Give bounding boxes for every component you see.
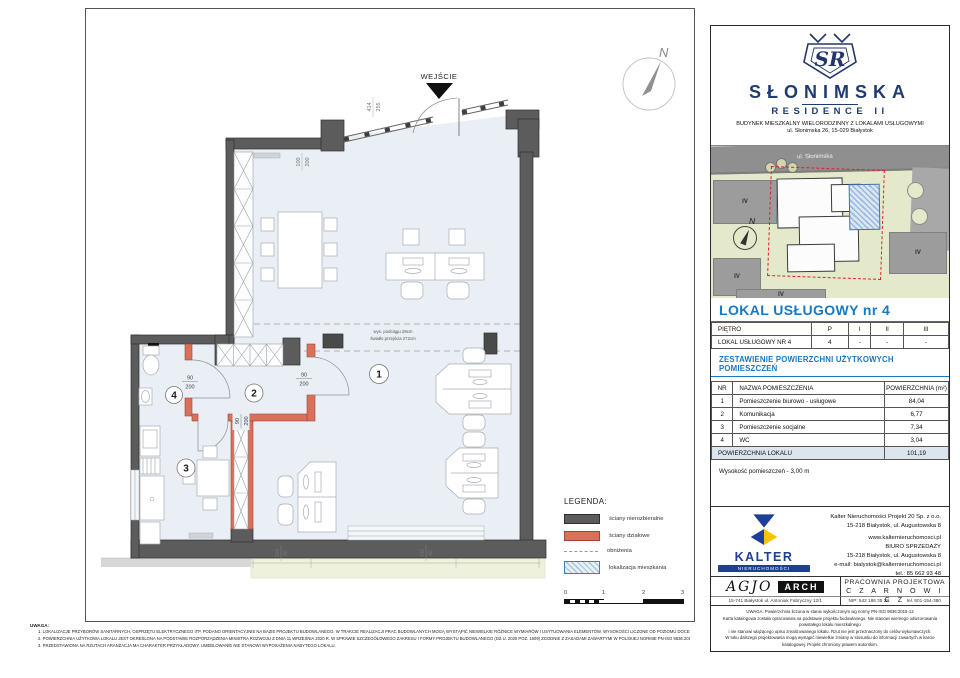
- contact-line: 15-218 Białystok, ul. Augustowska 8: [810, 522, 941, 531]
- beam-note-line1: wys. podciągu 28cm: [374, 329, 413, 334]
- svg-text:414: 414: [367, 102, 373, 111]
- window-left: [131, 470, 139, 520]
- svg-text:200: 200: [244, 416, 250, 425]
- svg-text:90: 90: [187, 376, 193, 382]
- fine-print: UWAGA: Powierzchnia liczona w stanie wyk…: [711, 605, 949, 651]
- window-bottom: [348, 526, 484, 540]
- entrance-arrow-icon: [426, 83, 453, 99]
- brand-subtitle: RESIDENCE II: [711, 106, 949, 117]
- building-description: BUDYNEK MIESZKALNY WIELORODZINNY Z LOKAL…: [711, 121, 949, 127]
- building-footprint: [787, 244, 835, 273]
- fine-print-line: W toku dalszego projektowania mogą wystą…: [717, 635, 943, 648]
- studio-nip: NIP: 542 186 35 28: [849, 598, 889, 605]
- svg-text:3: 3: [183, 464, 189, 475]
- entrance-label: WEJŚCIE: [421, 72, 458, 81]
- dashed-line-swatch: [564, 551, 598, 552]
- developer-block: KALTER NIERUCHOMOŚCI Kalter Nieruchomośc…: [711, 506, 949, 576]
- entry-dim: 414 255: [367, 97, 382, 117]
- north-label: N: [659, 45, 669, 60]
- door-dim-3: 90 200: [233, 412, 251, 430]
- svg-text:2: 2: [251, 389, 257, 400]
- kalter-sub: NIERUCHOMOŚCI: [718, 565, 810, 572]
- map-north-label: N: [749, 216, 755, 226]
- sr-logo-icon: SR: [798, 32, 862, 80]
- studio-tel: tel. 501-154-380: [907, 598, 941, 605]
- studio-block: AGJO ARCH PRACOWNIA PROJEKTOWA C Z A R N…: [711, 576, 949, 605]
- agjo-arch-logo: AGJO ARCH: [711, 577, 840, 596]
- legend-item: obniżenia: [564, 548, 688, 554]
- areas-row: 3 Pomieszczenie socjalne 7,34: [712, 421, 949, 434]
- note-line: 1. LOKALIZACJE PRZYBORÓW SANITARNYCH, OS…: [30, 629, 690, 636]
- height-note: Wysokość pomieszczeń - 3,00 m: [711, 460, 949, 475]
- floorplan-sheet: WEJŚCIE: [85, 8, 695, 622]
- street-label: ul. Słonimska: [797, 154, 833, 161]
- svg-text:60: 60: [283, 550, 289, 556]
- note-line: 3. PRZEDSTAWIONA NA RZUTACH ARANŻACJA MA…: [30, 643, 690, 650]
- neighbor-building: IV: [889, 232, 947, 274]
- areas-row: 2 Komunikacja 6,77: [712, 408, 949, 421]
- kalter-logo: KALTER NIERUCHOMOŚCI: [718, 513, 810, 571]
- agjo-logo: AGJO: [726, 579, 772, 595]
- solid-wall-swatch: [564, 514, 600, 524]
- svg-text:200: 200: [185, 385, 194, 391]
- driveway-arc: [911, 208, 928, 225]
- legend: LEGENDA: ściany nierozbieralne ściany dz…: [564, 497, 688, 606]
- info-panel: SR SŁONIMSKA RESIDENCE II BUDYNEK MIESZK…: [710, 25, 950, 652]
- areas-heading: ZESTAWIENIE POWIERZCHNI UŻYTKOWYCH POMIE…: [711, 349, 949, 377]
- contact-line: BIURO SPRZEDAŻY: [810, 543, 941, 552]
- svg-text:90: 90: [301, 373, 307, 379]
- studio-name: PRACOWNIA PROJEKTOWA C Z A R N O W I C Z: [840, 577, 949, 596]
- map-compass-icon: [733, 226, 757, 250]
- studio-address: 15-741 Białystok ul. Antoniuk Fabryczny …: [711, 596, 840, 605]
- svg-text:SR: SR: [814, 47, 845, 71]
- svg-text:200: 200: [305, 157, 311, 166]
- legend-item: lokalizacja mieszkania: [564, 561, 688, 574]
- contact-line: Kalter Nieruchomości Projekt 20 Sp. z o.…: [810, 513, 941, 522]
- svg-text:100: 100: [296, 157, 302, 166]
- areas-row: 1 Pomieszczenie biurowo - usługowe 84,04: [712, 395, 949, 408]
- contact-line: e-mail: bialystok@kalternieruchomosci.pl: [810, 561, 941, 570]
- legend-title: LEGENDA:: [564, 497, 688, 506]
- floor-table: PIĘTRO P I II III LOKAL USŁUGOWY NR 4 4 …: [711, 322, 949, 349]
- door-dim-2: 90 200: [295, 370, 313, 388]
- unit-highlight: [849, 184, 881, 231]
- brand-name: SŁONIMSKA: [711, 82, 949, 103]
- compass-needle: [740, 228, 752, 245]
- neighbor-building: IV: [736, 289, 826, 298]
- studio-ids: NIP: 542 186 35 28 tel. 501-154-380: [840, 596, 949, 605]
- beam-note-line2: światło przejścia 272cm: [370, 336, 416, 341]
- contact-line: 15-218 Białystok, ul. Augustowska 8: [810, 552, 941, 561]
- svg-text:430: 430: [420, 549, 426, 558]
- developer-contact: Kalter Nieruchomości Projekt 20 Sp. z o.…: [810, 513, 942, 571]
- hatch-swatch: [564, 561, 600, 574]
- svg-text:200: 200: [275, 549, 281, 558]
- areas-total-row: POWIERZCHNIA LOKALU 101,19: [712, 447, 949, 460]
- sheet-notes: UWAGA: 1. LOKALIZACJE PRZYBORÓW SANITARN…: [30, 623, 690, 650]
- neighbor-building: IV: [713, 180, 777, 224]
- svg-text:60: 60: [428, 550, 434, 556]
- floor-table-row: LOKAL USŁUGOWY NR 4 4 - - -: [712, 336, 949, 349]
- svg-text:90: 90: [235, 418, 241, 424]
- svg-text:4: 4: [171, 391, 177, 402]
- kalter-name: KALTER: [718, 550, 810, 564]
- arch-badge: ARCH: [778, 581, 824, 593]
- floor-table-header: PIĘTRO P I II III: [712, 323, 949, 336]
- north-compass: N: [623, 45, 675, 110]
- legend-item: ściany działowe: [564, 531, 688, 541]
- kalter-logo-icon: [744, 513, 784, 549]
- site-map: ul. Słonimska IV IV IV IV N: [711, 145, 949, 298]
- fine-print-line: Karta katalogowa została opracowana na p…: [717, 616, 943, 629]
- door-dim-1: 90 200: [181, 373, 199, 391]
- svg-text:255: 255: [376, 102, 382, 111]
- contact-line: www.kalternieruchomosci.pl: [810, 534, 941, 543]
- partition-wall-swatch: [564, 531, 600, 541]
- notes-title: UWAGA:: [30, 623, 690, 628]
- brand-underline: [802, 104, 858, 105]
- exterior-strips: [101, 558, 546, 578]
- building-address: ul. Słonimska 26, 15-029 Białystok: [711, 128, 949, 134]
- unit-title: LOKAL USŁUGOWY nr 4: [711, 298, 949, 322]
- svg-text:200: 200: [299, 382, 308, 388]
- areas-table: NR NAZWA POMIESZCZENIA POWIERZCHNIA (m²)…: [711, 381, 949, 460]
- note-line: 2. POWIERZCHNIA UŻYTKOWA LOKALU JEST OKR…: [30, 636, 690, 643]
- driveway-arc: [907, 182, 924, 199]
- spacer: [711, 475, 949, 506]
- scale-bar: 0 1 2 3: [564, 590, 684, 606]
- areas-row: 4 WC 3,04: [712, 434, 949, 447]
- areas-table-header: NR NAZWA POMIESZCZENIA POWIERZCHNIA (m²): [712, 382, 949, 395]
- svg-text:1: 1: [376, 370, 382, 381]
- legend-item: ściany nierozbieralne: [564, 514, 688, 524]
- fine-print-line: UWAGA: Powierzchnia liczona w stanie wyk…: [717, 609, 943, 615]
- brand-header: SR SŁONIMSKA RESIDENCE II BUDYNEK MIESZK…: [711, 26, 949, 145]
